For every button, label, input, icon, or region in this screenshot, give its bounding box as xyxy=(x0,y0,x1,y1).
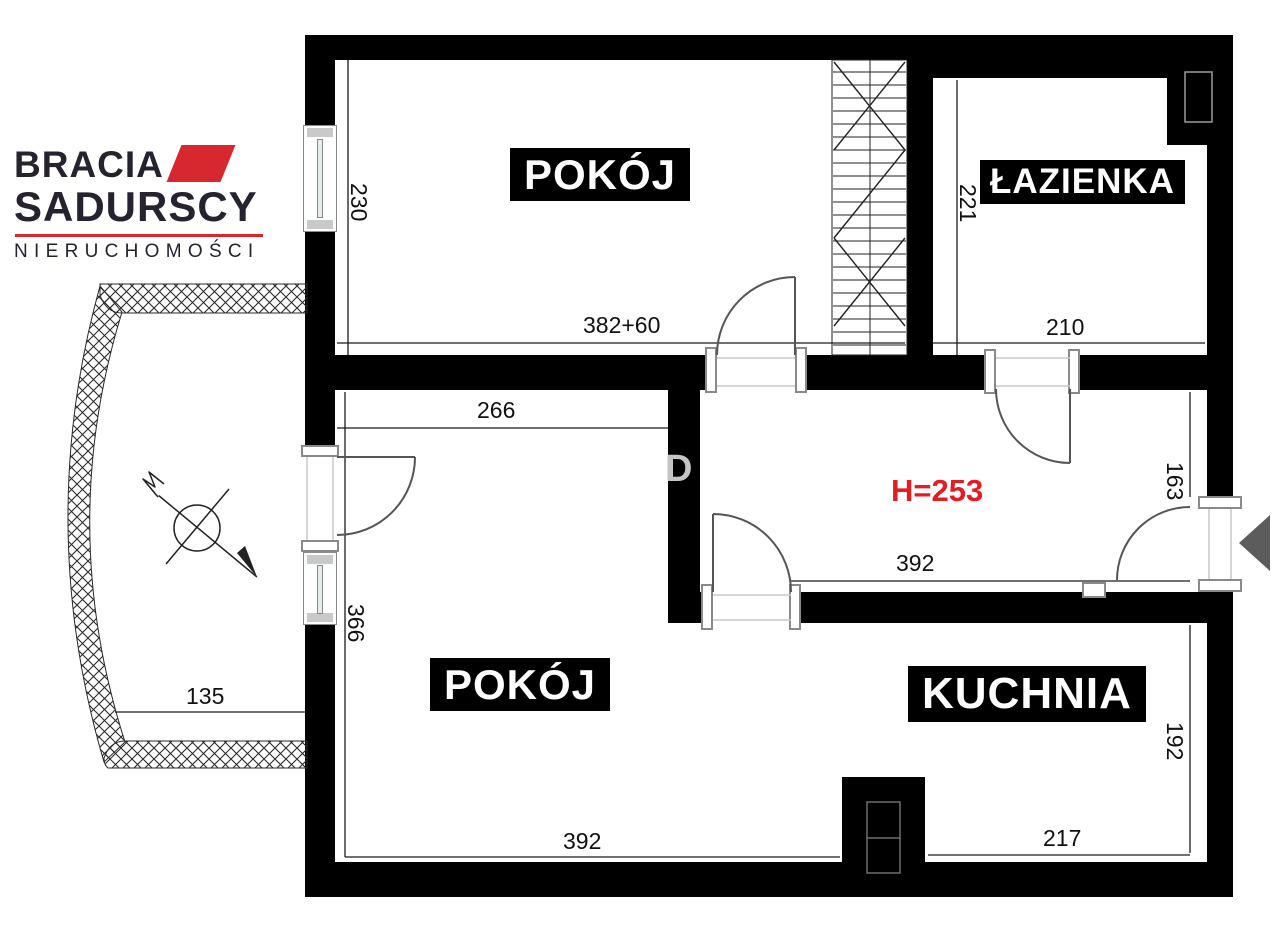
wall-left-3 xyxy=(305,625,335,862)
dim-lazienka-width: 210 xyxy=(1046,314,1084,341)
balcony-door-swing xyxy=(337,457,415,535)
wall-bottom xyxy=(305,862,1233,897)
entrance-arrow-icon xyxy=(1239,515,1270,571)
bathroom-door-jamb xyxy=(1068,349,1080,394)
dim-lazienka-height: 221 xyxy=(954,184,981,222)
wall-hall-top-a xyxy=(305,355,717,390)
room-label-pokoj-top: POKÓJ xyxy=(510,148,690,201)
wardrobe-strip xyxy=(832,60,907,355)
wall-left-1 xyxy=(305,35,335,125)
dim-hall-kitchen-width: 392 xyxy=(896,550,934,577)
room-label-kuchnia: KUCHNIA xyxy=(908,666,1146,722)
dim-pokoj-top-height: 230 xyxy=(345,183,372,221)
dim-kuchnia-width: 217 xyxy=(1043,825,1081,852)
window-bottom-room xyxy=(303,552,337,625)
logo-divider xyxy=(15,234,263,237)
balcony-door-jamb xyxy=(301,445,339,457)
entrance-door-jamb xyxy=(1198,579,1242,592)
plan-graphics xyxy=(0,0,1280,941)
wall-watermark-letter: D xyxy=(665,448,692,491)
wall-bathroom-left xyxy=(907,60,933,390)
entrance-door-jamb xyxy=(1198,496,1242,509)
dim-pokoj-bottom-height: 366 xyxy=(342,604,369,642)
entrance-door-swing xyxy=(1117,507,1190,580)
room-label-pokoj-bottom: POKÓJ xyxy=(430,658,610,711)
window-cap xyxy=(307,613,333,622)
wall-shaft-top-right xyxy=(1167,35,1233,145)
balcony-door-jamb xyxy=(301,540,339,552)
agency-logo: BRACIA SADURSCY NIERUCHOMOŚCI xyxy=(14,146,263,261)
wall-end-jamb xyxy=(1082,582,1106,598)
dim-balkon-width: 135 xyxy=(186,683,224,710)
wall-right-upper xyxy=(1207,145,1233,497)
wall-left-2 xyxy=(305,232,335,445)
window-glazing xyxy=(317,139,323,218)
window-top-room xyxy=(303,125,337,232)
hall-door-jamb xyxy=(789,584,801,630)
logo-red-parallelogram-icon xyxy=(166,145,235,182)
logo-brand-top: BRACIA xyxy=(14,146,164,183)
bathroom-door-swing xyxy=(996,389,1070,463)
dim-pokoj-bottom-top-width: 266 xyxy=(477,397,515,424)
dim-kuchnia-height: 192 xyxy=(1161,722,1188,760)
room-top-door-jamb xyxy=(795,347,807,393)
window-cap xyxy=(307,128,333,137)
door-opening-lines xyxy=(307,358,1231,620)
floor-plan-page: BRACIA SADURSCY NIERUCHOMOŚCI xyxy=(0,0,1280,941)
chimney-block xyxy=(842,777,925,893)
room-label-lazienka: ŁAZIENKA xyxy=(980,160,1185,204)
dim-pokoj-top-width: 382+60 xyxy=(583,312,660,339)
window-glazing xyxy=(317,565,323,614)
logo-tagline: NIERUCHOMOŚCI xyxy=(14,242,263,261)
room-top-door-jamb xyxy=(705,347,717,393)
north-arrow-icon xyxy=(143,472,257,577)
room-top-door-swing xyxy=(717,277,795,355)
window-cap xyxy=(307,555,333,564)
wall-hall-top-b xyxy=(795,355,996,390)
dim-entry-wall-height: 163 xyxy=(1161,462,1188,500)
wall-hall-top-c xyxy=(1070,355,1207,390)
ceiling-height-note: H=253 xyxy=(891,473,983,509)
wall-right-lower xyxy=(1207,592,1233,897)
wall-top xyxy=(305,35,1233,60)
window-cap xyxy=(307,220,333,229)
bathroom-door-jamb xyxy=(984,349,996,394)
logo-row: BRACIA xyxy=(14,146,263,183)
wall-hall-left xyxy=(668,390,700,623)
hall-door-jamb xyxy=(701,584,713,630)
logo-brand-bottom: SADURSCY xyxy=(14,186,263,228)
wall-hall-bottom-b xyxy=(791,592,1233,623)
hall-door-swing xyxy=(713,514,791,592)
dim-pokoj-bottom-width: 392 xyxy=(563,828,601,855)
